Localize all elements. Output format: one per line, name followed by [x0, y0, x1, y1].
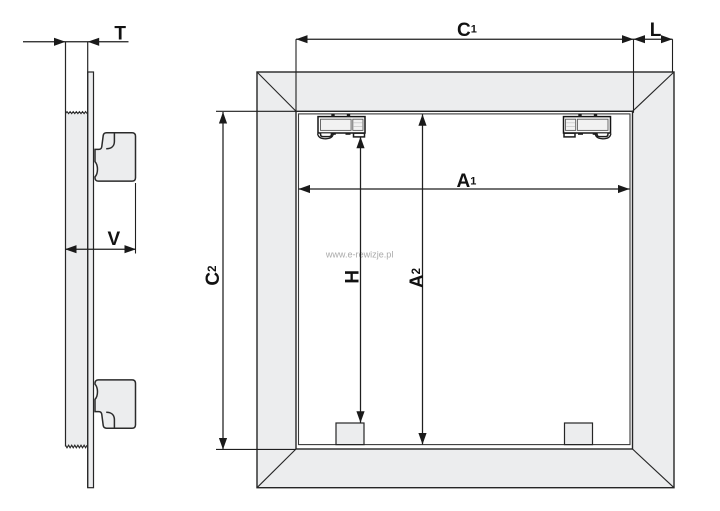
- svg-text:T: T: [114, 24, 126, 45]
- svg-text:H: H: [342, 270, 363, 284]
- svg-text:V: V: [107, 229, 120, 250]
- svg-text:www.e-rewizje.pl: www.e-rewizje.pl: [325, 249, 393, 260]
- svg-text:L: L: [650, 20, 662, 41]
